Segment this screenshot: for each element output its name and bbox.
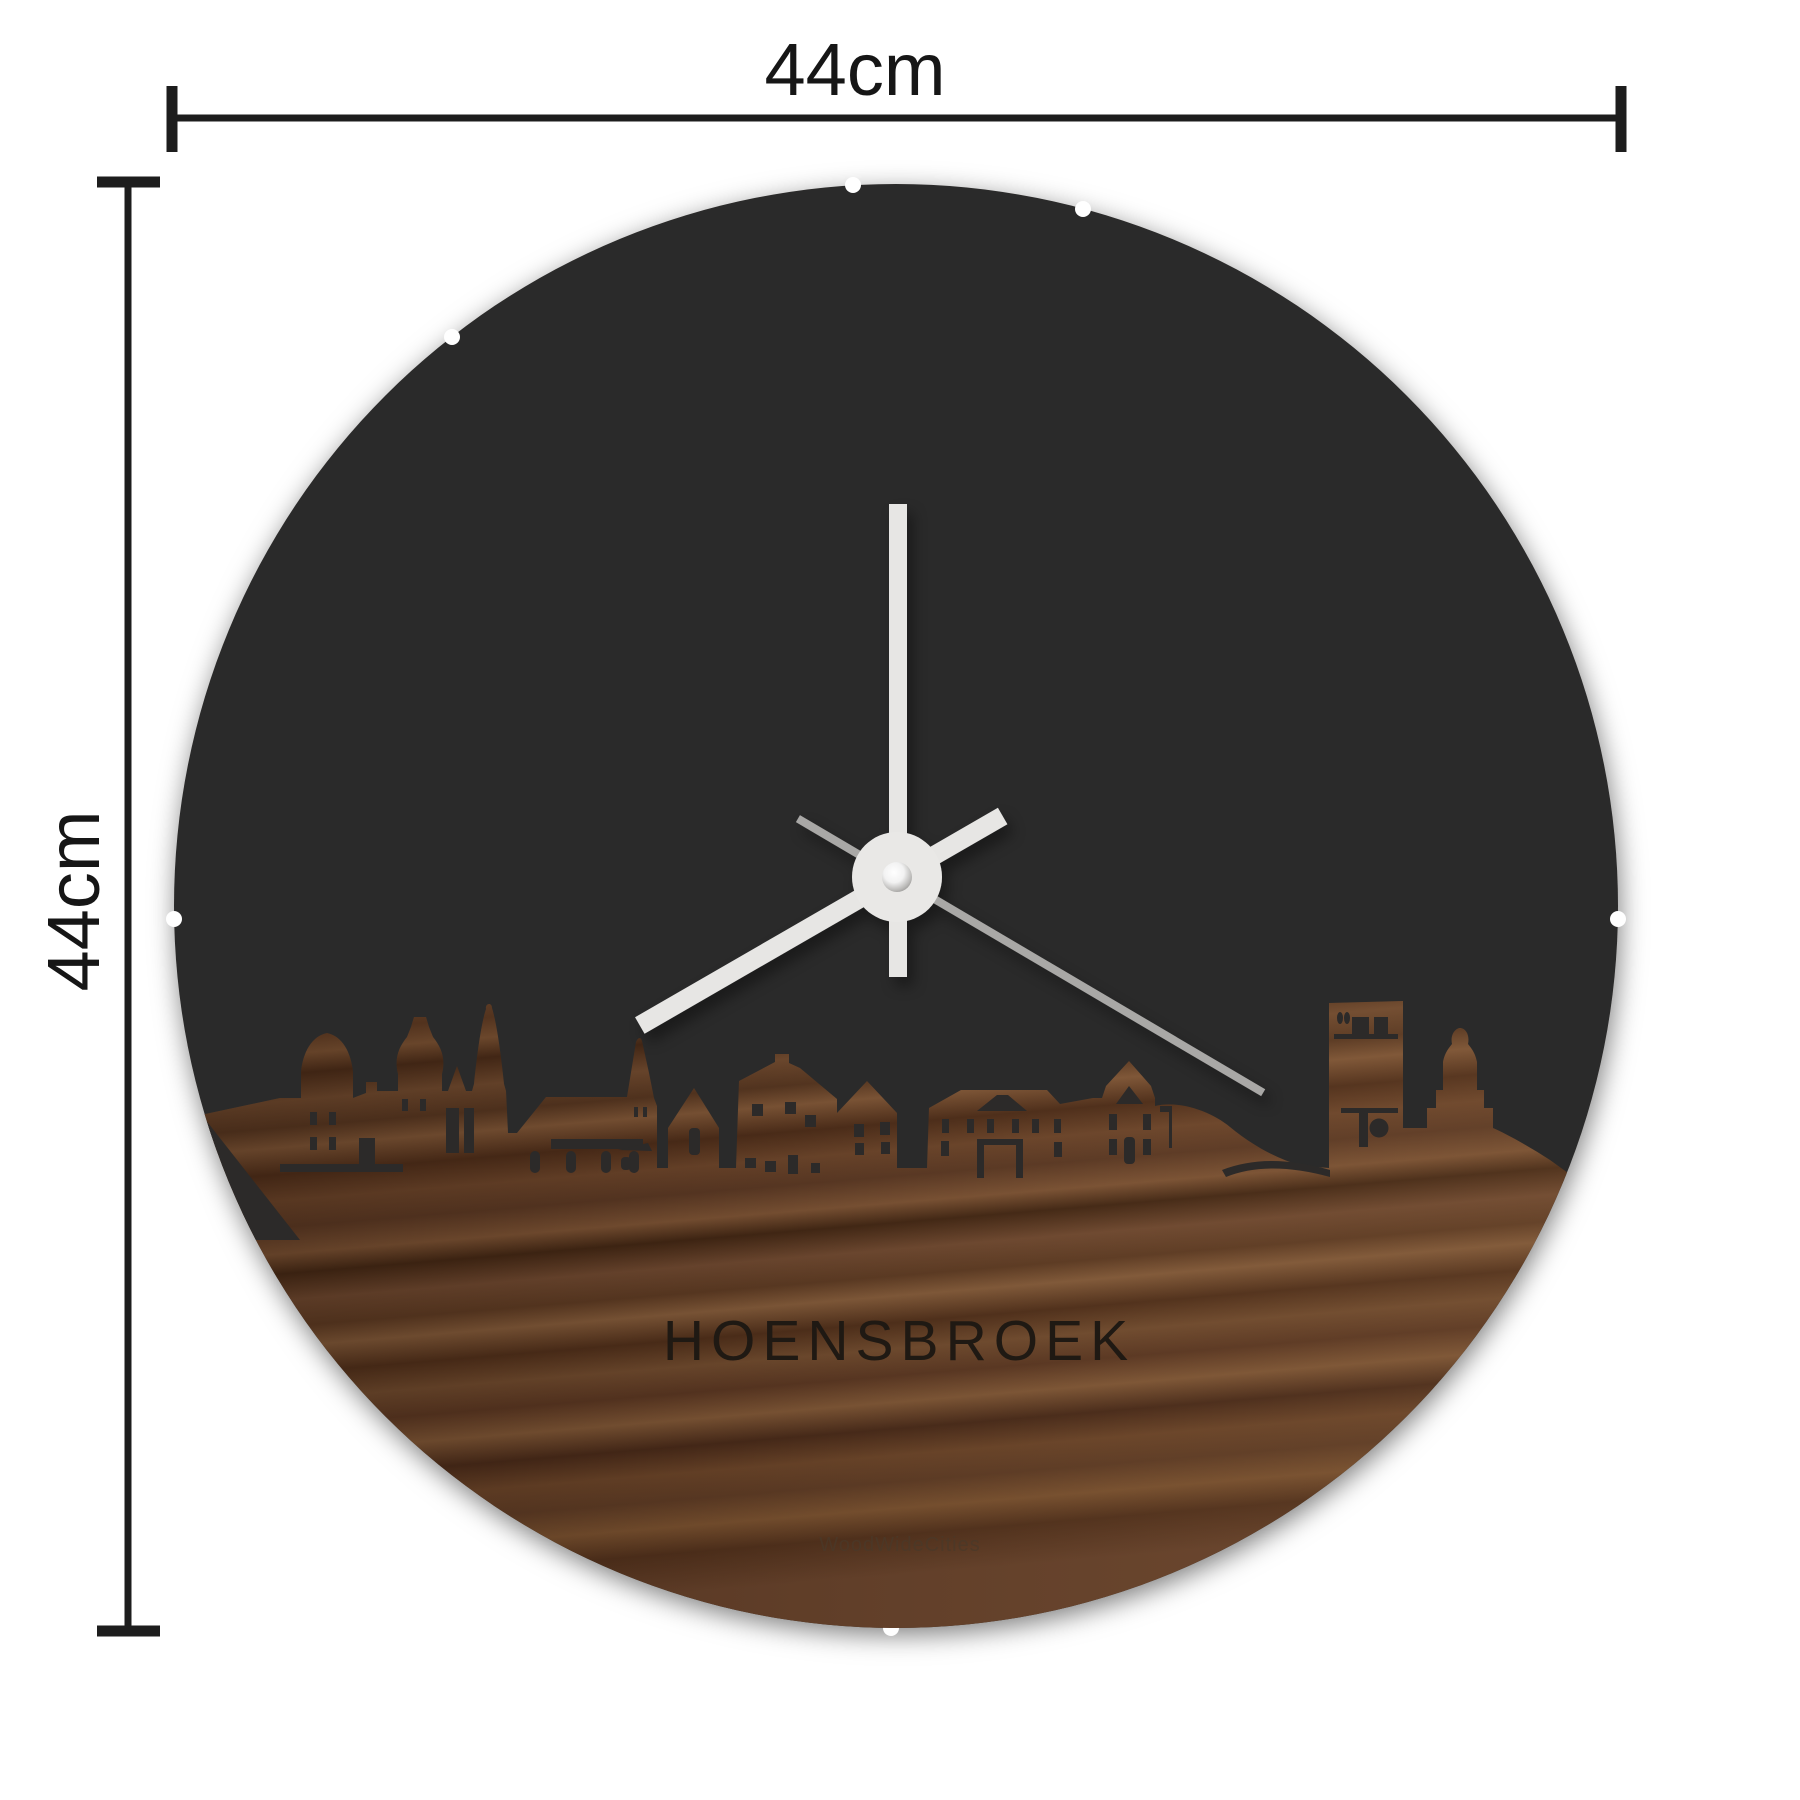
mounting-notch-icon	[1610, 911, 1626, 927]
mounting-notch-icon	[166, 911, 182, 927]
mounting-notch-icon	[444, 329, 460, 345]
diagram-canvas: 44cm 44cm	[0, 0, 1800, 1800]
mounting-notch-icon	[1075, 201, 1091, 217]
watermark-text: WoodWideCities	[819, 1534, 980, 1556]
city-name-text: HOENSBROEK	[663, 1309, 1135, 1373]
height-dimension-label: 44cm	[32, 811, 115, 992]
width-dimension-label: 44cm	[765, 28, 946, 111]
mounting-notch-icon	[845, 177, 861, 193]
product-image: 44cm 44cm	[0, 0, 1800, 1800]
center-cap-ball	[882, 862, 912, 892]
